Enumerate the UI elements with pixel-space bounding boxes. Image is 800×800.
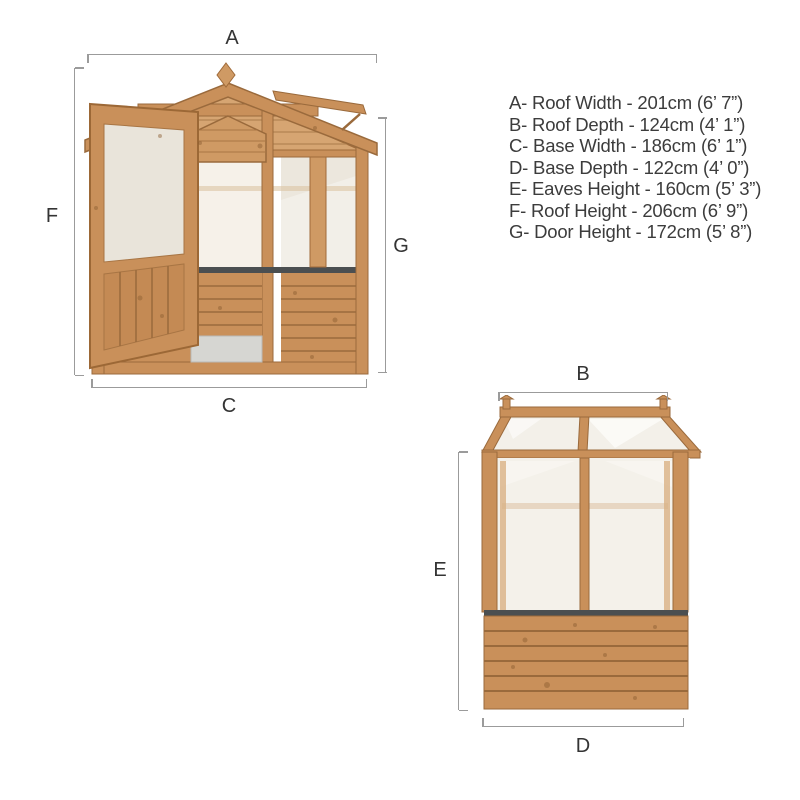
- dimension-label-e: E: [430, 560, 450, 580]
- front-elevation-illustration: [80, 58, 380, 378]
- side-ridge-rail: [500, 407, 670, 417]
- dimension-line-a: [87, 54, 377, 55]
- side-right-corner-post: [673, 452, 688, 612]
- open-door: [90, 104, 198, 368]
- dimension-line-e: [458, 452, 459, 710]
- legend-item: C- Base Width - 186cm (6’ 1”): [509, 135, 794, 157]
- door-ramp: [191, 336, 262, 362]
- dimension-label-f: F: [42, 206, 62, 226]
- dimension-line-b: [498, 392, 668, 393]
- legend-item: F- Roof Height - 206cm (6’ 9”): [509, 200, 794, 222]
- dimension-label-g: G: [391, 236, 411, 256]
- side-left-corner-post: [482, 452, 497, 612]
- dimension-label-a: A: [87, 28, 377, 48]
- roof-finial: [217, 63, 235, 87]
- dimension-legend: A- Roof Width - 201cm (6’ 7”) B- Roof De…: [509, 92, 794, 243]
- front-right-corner-post: [356, 145, 368, 374]
- side-sill: [484, 610, 688, 616]
- right-window-mullion: [310, 157, 326, 267]
- side-eaves-beam: [482, 450, 700, 458]
- legend-item: A- Roof Width - 201cm (6’ 7”): [509, 92, 794, 114]
- side-finial-left: [503, 398, 510, 409]
- diagram-canvas: A F G C A- Roof Width - 201cm (6’ 7”) B-…: [0, 0, 800, 800]
- dimension-line-f: [74, 68, 75, 375]
- dimension-line-g: [385, 118, 386, 372]
- dimension-line-d: [482, 726, 684, 727]
- door-bottom-boards: [191, 273, 262, 336]
- side-elevation-illustration: [455, 395, 705, 715]
- side-cladding: [484, 616, 688, 709]
- front-bottom-rail: [92, 362, 368, 374]
- legend-item: G- Door Height - 172cm (5’ 8”): [509, 221, 794, 243]
- side-roof-mullion: [578, 415, 589, 452]
- dimension-label-c: C: [91, 396, 367, 416]
- legend-item: E- Eaves Height - 160cm (5’ 3”): [509, 178, 794, 200]
- dimension-line-c: [91, 387, 367, 388]
- dimension-label-d: D: [482, 736, 684, 756]
- side-wall-mullion: [580, 458, 589, 612]
- legend-item: B- Roof Depth - 124cm (4’ 1”): [509, 114, 794, 136]
- legend-item: D- Base Depth - 122cm (4’ 0”): [509, 157, 794, 179]
- dimension-label-b: B: [498, 364, 668, 384]
- open-door-glass: [104, 124, 184, 262]
